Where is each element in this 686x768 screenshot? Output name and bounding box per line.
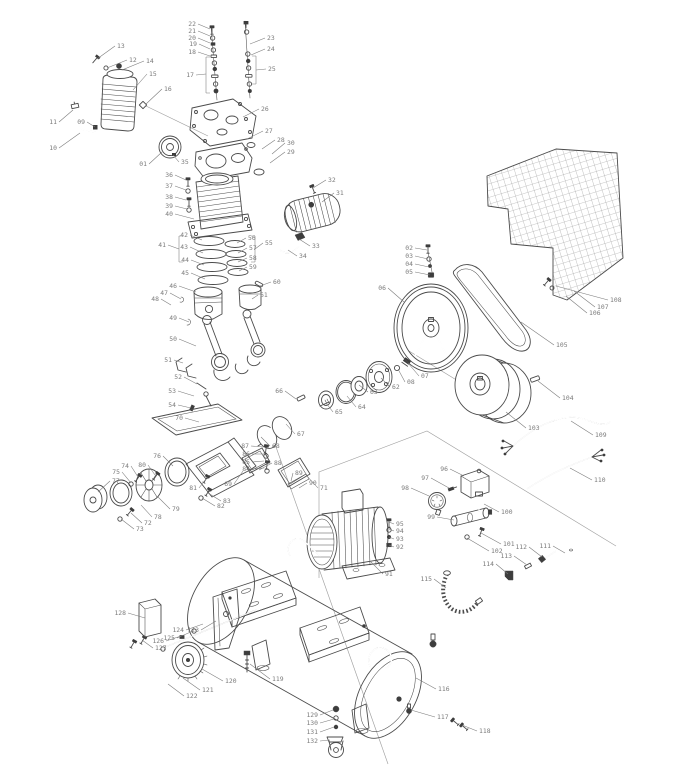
callout-leader-122 bbox=[168, 684, 184, 696]
wheel bbox=[172, 642, 207, 681]
callout-label-44: 44 bbox=[181, 256, 189, 264]
callout-label-61: 61 bbox=[260, 291, 268, 299]
callout-leader-23 bbox=[250, 38, 265, 44]
callout-leader-54 bbox=[178, 405, 191, 408]
callout-label-03: 03 bbox=[405, 252, 413, 260]
cooler-top-cap bbox=[107, 70, 133, 79]
callout-label-108: 108 bbox=[610, 296, 622, 304]
callout-label-07: 07 bbox=[421, 372, 429, 380]
callout-label-70: 70 bbox=[175, 414, 183, 422]
callout-label-64: 64 bbox=[358, 403, 366, 411]
callout-label-16: 16 bbox=[164, 85, 172, 93]
callout-leader-85 bbox=[252, 461, 264, 462]
motor-pulley bbox=[455, 355, 540, 423]
drain-plug-117 bbox=[406, 704, 411, 714]
diagram-canvas: 0102030405060708091011121314151617181920… bbox=[0, 0, 686, 768]
flywheel bbox=[394, 284, 468, 372]
callout-label-23: 23 bbox=[267, 34, 275, 42]
callout-leader-15 bbox=[133, 74, 147, 90]
callout-label-17: 17 bbox=[186, 71, 194, 79]
clamp-51 bbox=[176, 358, 186, 372]
callout-layer: 0102030405060708091011121314151617181920… bbox=[49, 20, 621, 745]
callout-label-53: 53 bbox=[168, 387, 176, 395]
callout-label-36: 36 bbox=[165, 171, 173, 179]
bearing-shell bbox=[235, 364, 248, 374]
callout-label-77: 77 bbox=[112, 477, 120, 485]
shaft-key-66 bbox=[297, 395, 306, 402]
callout-label-47: 47 bbox=[160, 289, 168, 297]
callout-label-115: 115 bbox=[420, 575, 432, 583]
v-belt bbox=[453, 265, 530, 352]
callout-label-14: 14 bbox=[146, 57, 154, 65]
bracket-17 bbox=[206, 57, 210, 93]
callout-label-74: 74 bbox=[121, 462, 129, 470]
callout-leader-36 bbox=[175, 175, 186, 180]
callout-leader-45 bbox=[191, 273, 205, 279]
callout-label-121: 121 bbox=[202, 686, 214, 694]
caster-stack bbox=[327, 706, 344, 758]
callout-leader-76 bbox=[163, 456, 173, 466]
callout-label-04: 04 bbox=[405, 260, 413, 268]
callout-label-85: 85 bbox=[242, 458, 250, 466]
callout-leader-61 bbox=[252, 295, 258, 299]
base-plate bbox=[152, 404, 242, 435]
callout-label-122: 122 bbox=[186, 692, 198, 700]
callout-leader-98 bbox=[411, 488, 429, 496]
callout-label-48: 48 bbox=[151, 295, 159, 303]
callout-label-111: 111 bbox=[539, 542, 551, 550]
callout-leader-116 bbox=[416, 678, 436, 689]
callout-label-103: 103 bbox=[528, 424, 540, 432]
callout-label-71: 71 bbox=[320, 484, 328, 492]
flywheel-bolt-stack bbox=[426, 244, 434, 277]
piston-large bbox=[194, 287, 222, 319]
callout-leader-32 bbox=[313, 180, 326, 188]
callout-label-104: 104 bbox=[562, 394, 574, 402]
callout-label-125: 125 bbox=[163, 634, 175, 642]
seal-63 bbox=[351, 377, 367, 396]
callout-leader-128 bbox=[128, 613, 145, 618]
callout-label-45: 45 bbox=[181, 269, 189, 277]
callout-label-50: 50 bbox=[169, 335, 177, 343]
valve-stack-right bbox=[244, 21, 252, 98]
valve-stack-left bbox=[210, 25, 219, 100]
callout-label-99: 99 bbox=[427, 513, 435, 521]
callout-leader-01 bbox=[149, 152, 162, 164]
callout-label-43: 43 bbox=[180, 243, 188, 251]
connecting-rods bbox=[176, 310, 265, 381]
callout-label-89: 89 bbox=[295, 469, 303, 477]
callout-label-119: 119 bbox=[272, 675, 284, 683]
callout-label-93: 93 bbox=[396, 535, 404, 543]
callout-label-120: 120 bbox=[225, 677, 237, 685]
callout-leader-131 bbox=[320, 727, 334, 732]
callout-label-21: 21 bbox=[188, 27, 196, 35]
callout-leader-110 bbox=[570, 468, 592, 480]
callout-label-112: 112 bbox=[515, 543, 527, 551]
callout-leader-44 bbox=[191, 260, 204, 265]
callout-leader-83 bbox=[208, 493, 221, 501]
manifold bbox=[451, 492, 492, 539]
callout-leader-121 bbox=[183, 678, 200, 690]
callout-label-68: 68 bbox=[272, 442, 280, 450]
callout-leader-39 bbox=[175, 206, 187, 209]
guard-bolt bbox=[542, 277, 551, 287]
platform-box-1 bbox=[222, 571, 296, 627]
callout-label-33: 33 bbox=[312, 242, 320, 250]
callout-label-110: 110 bbox=[594, 476, 606, 484]
callout-label-131: 131 bbox=[306, 728, 318, 736]
nipple-09 bbox=[93, 125, 98, 130]
callout-label-38: 38 bbox=[165, 193, 173, 201]
discharge-pipe bbox=[505, 549, 573, 580]
callout-label-76: 76 bbox=[153, 452, 161, 460]
callout-label-128: 128 bbox=[114, 609, 126, 617]
callout-label-13: 13 bbox=[117, 42, 125, 50]
callout-label-12: 12 bbox=[129, 56, 137, 64]
callout-label-10: 10 bbox=[49, 144, 57, 152]
electric-motor bbox=[307, 489, 395, 579]
callout-label-37: 37 bbox=[165, 182, 173, 190]
callout-label-87: 87 bbox=[241, 442, 249, 450]
callout-leader-65 bbox=[326, 403, 333, 412]
callout-label-75: 75 bbox=[112, 468, 120, 476]
fitting-16 bbox=[139, 101, 146, 108]
callout-label-100: 100 bbox=[501, 508, 513, 516]
callout-leader-11 bbox=[59, 110, 73, 122]
callout-label-98: 98 bbox=[401, 484, 409, 492]
callout-label-107: 107 bbox=[597, 303, 609, 311]
callout-label-05: 05 bbox=[405, 268, 413, 276]
wheel-bracket bbox=[213, 589, 239, 650]
callout-leader-04 bbox=[415, 264, 429, 267]
callout-label-28: 28 bbox=[277, 136, 285, 144]
oil-dipstick bbox=[189, 383, 211, 411]
callout-label-105: 105 bbox=[556, 341, 568, 349]
callout-leader-10 bbox=[59, 133, 80, 148]
callout-label-94: 94 bbox=[396, 527, 404, 535]
callout-label-127: 127 bbox=[155, 644, 167, 652]
washer-102 bbox=[465, 535, 469, 539]
callout-label-25: 25 bbox=[268, 65, 276, 73]
callout-label-59: 59 bbox=[249, 263, 257, 271]
callout-label-88: 88 bbox=[274, 459, 282, 467]
callout-leader-97 bbox=[431, 478, 449, 488]
callout-label-69: 69 bbox=[224, 480, 232, 488]
callout-label-96: 96 bbox=[440, 465, 448, 473]
callout-leader-24 bbox=[251, 49, 265, 55]
callout-leader-17 bbox=[196, 74, 206, 75]
callout-leader-95 bbox=[389, 522, 394, 524]
callout-leader-89 bbox=[291, 473, 293, 481]
callout-label-86: 86 bbox=[242, 450, 250, 458]
callout-label-15: 15 bbox=[149, 70, 157, 78]
callout-leader-82 bbox=[202, 498, 215, 506]
callout-leader-104 bbox=[538, 381, 560, 398]
callout-leader-74 bbox=[131, 466, 138, 477]
callout-leader-20 bbox=[198, 38, 210, 43]
rod-cap bbox=[214, 370, 230, 381]
callout-leader-09 bbox=[87, 122, 95, 127]
callout-label-78: 78 bbox=[154, 513, 162, 521]
cylinder-block bbox=[188, 173, 252, 238]
callout-label-130: 130 bbox=[306, 719, 318, 727]
tank-boss bbox=[396, 696, 401, 701]
callout-label-91: 91 bbox=[385, 570, 393, 578]
callout-label-92: 92 bbox=[396, 543, 404, 551]
callout-label-60: 60 bbox=[273, 278, 281, 286]
callout-label-52: 52 bbox=[174, 373, 182, 381]
callout-label-62: 62 bbox=[392, 383, 400, 391]
callout-leader-118 bbox=[462, 725, 477, 731]
tank-fitting bbox=[430, 634, 436, 647]
callout-leader-78 bbox=[141, 505, 152, 517]
callout-label-72: 72 bbox=[144, 519, 152, 527]
bearing-shell bbox=[247, 356, 260, 366]
callout-label-114: 114 bbox=[482, 560, 494, 568]
callout-label-39: 39 bbox=[165, 202, 173, 210]
callout-label-63: 63 bbox=[370, 388, 378, 396]
exhaust-elbow bbox=[247, 142, 269, 175]
bearing-65 bbox=[319, 391, 334, 409]
callout-leader-50 bbox=[179, 339, 196, 346]
clamp-51b bbox=[186, 364, 196, 378]
callout-label-51: 51 bbox=[164, 356, 172, 364]
callout-leader-72 bbox=[131, 513, 142, 523]
callout-leader-26 bbox=[243, 109, 259, 117]
callout-label-118: 118 bbox=[479, 727, 491, 735]
callout-label-34: 34 bbox=[299, 252, 307, 260]
callout-label-06: 06 bbox=[378, 284, 386, 292]
callout-leader-18 bbox=[198, 52, 210, 56]
callout-leader-21 bbox=[198, 31, 210, 36]
tank-handle-right bbox=[369, 648, 392, 669]
callout-leader-38 bbox=[175, 197, 186, 200]
callout-label-73: 73 bbox=[136, 525, 144, 533]
callout-leader-66 bbox=[285, 391, 296, 399]
callout-label-29: 29 bbox=[287, 148, 295, 156]
callout-leader-53 bbox=[178, 391, 194, 396]
callout-label-132: 132 bbox=[306, 737, 318, 745]
callout-label-79: 79 bbox=[172, 505, 180, 513]
callout-label-84: 84 bbox=[242, 465, 250, 473]
callout-leader-46 bbox=[179, 286, 196, 292]
callout-label-113: 113 bbox=[500, 552, 512, 560]
callout-label-11: 11 bbox=[49, 118, 57, 126]
callout-leader-06 bbox=[388, 288, 404, 302]
callout-leader-08 bbox=[398, 369, 405, 382]
callout-label-54: 54 bbox=[168, 401, 176, 409]
callout-leader-114 bbox=[496, 564, 508, 574]
callout-label-90: 90 bbox=[309, 479, 317, 487]
callout-leader-03 bbox=[415, 256, 428, 259]
belt-guard bbox=[487, 149, 623, 300]
air-filter bbox=[159, 136, 181, 158]
callout-leader-70 bbox=[185, 418, 199, 422]
callout-leader-30 bbox=[272, 143, 285, 154]
callout-label-22: 22 bbox=[188, 20, 196, 28]
callout-label-124: 124 bbox=[172, 626, 184, 634]
callout-leader-27 bbox=[247, 131, 263, 139]
filter-fitting-35 bbox=[172, 153, 176, 156]
callout-leader-87 bbox=[251, 446, 264, 447]
callout-label-24: 24 bbox=[267, 45, 275, 53]
callout-leader-105 bbox=[521, 322, 554, 345]
head-bolts bbox=[186, 177, 192, 212]
callout-leader-130 bbox=[320, 719, 334, 723]
exploded-parts-diagram: 0102030405060708091011121314151617181920… bbox=[0, 0, 686, 768]
callout-leader-127 bbox=[142, 640, 153, 648]
callout-label-57: 57 bbox=[249, 244, 257, 252]
callout-label-58: 58 bbox=[249, 254, 257, 262]
callout-leader-13 bbox=[97, 46, 115, 59]
callout-label-30: 30 bbox=[287, 139, 295, 147]
callout-leader-43 bbox=[190, 247, 203, 253]
callout-label-32: 32 bbox=[328, 176, 336, 184]
callout-leader-25 bbox=[256, 69, 266, 70]
fitting-11 bbox=[71, 101, 79, 108]
screw-101 bbox=[477, 527, 485, 537]
callout-label-20: 20 bbox=[188, 34, 196, 42]
callout-leader-113 bbox=[514, 556, 527, 565]
platform-box-2 bbox=[300, 607, 369, 662]
callout-leader-33 bbox=[299, 239, 310, 246]
callout-label-117: 117 bbox=[437, 713, 449, 721]
callout-label-35: 35 bbox=[181, 158, 189, 166]
callout-label-49: 49 bbox=[169, 314, 177, 322]
callout-label-109: 109 bbox=[595, 431, 607, 439]
callout-label-83: 83 bbox=[223, 497, 231, 505]
callout-label-02: 02 bbox=[405, 244, 413, 252]
flex-hose bbox=[443, 571, 482, 612]
callout-leader-16 bbox=[146, 89, 162, 104]
callout-leader-101 bbox=[481, 533, 501, 544]
callout-label-129: 129 bbox=[306, 711, 318, 719]
bolt-13 bbox=[91, 54, 101, 64]
callout-label-40: 40 bbox=[165, 210, 173, 218]
callout-label-67: 67 bbox=[297, 430, 305, 438]
callout-leader-109 bbox=[571, 421, 593, 435]
callout-label-42: 42 bbox=[180, 231, 188, 239]
pressure-switch bbox=[461, 469, 489, 498]
callout-leader-79 bbox=[158, 497, 170, 509]
cooler-fins bbox=[101, 84, 136, 122]
muffler bbox=[281, 190, 343, 235]
cylinder-head bbox=[190, 99, 256, 146]
callout-label-95: 95 bbox=[396, 520, 404, 528]
callout-label-31: 31 bbox=[336, 189, 344, 197]
callout-label-41: 41 bbox=[158, 241, 166, 249]
crankshaft bbox=[253, 395, 329, 452]
callout-leader-47 bbox=[170, 293, 181, 299]
callout-label-80: 80 bbox=[138, 461, 146, 469]
callout-label-101: 101 bbox=[503, 540, 515, 548]
callout-label-01: 01 bbox=[139, 160, 147, 168]
circlip-47 bbox=[180, 297, 184, 302]
callout-label-09: 09 bbox=[77, 118, 85, 126]
callout-leader-49 bbox=[179, 318, 189, 322]
elbow-33 bbox=[295, 233, 305, 241]
callout-leader-117 bbox=[411, 710, 435, 717]
callout-leader-02 bbox=[415, 248, 427, 250]
callout-label-66: 66 bbox=[275, 387, 283, 395]
callout-leader-102 bbox=[467, 538, 489, 551]
screws-118 bbox=[450, 717, 469, 731]
callout-label-56: 56 bbox=[248, 234, 256, 242]
wire-109 bbox=[501, 417, 610, 455]
callout-leader-22 bbox=[198, 24, 210, 29]
bracket-25 bbox=[252, 56, 256, 84]
callout-label-08: 08 bbox=[407, 378, 415, 386]
callout-leader-120 bbox=[202, 669, 223, 681]
callout-leader-41 bbox=[168, 245, 179, 249]
callout-label-27: 27 bbox=[265, 127, 273, 135]
gauge-fitting-97 bbox=[448, 485, 458, 491]
callout-leader-96 bbox=[450, 469, 464, 476]
callout-label-65: 65 bbox=[335, 408, 343, 416]
callout-label-26: 26 bbox=[261, 105, 269, 113]
pressure-gauge bbox=[429, 493, 446, 516]
callout-leader-73 bbox=[121, 519, 134, 529]
callout-leader-19 bbox=[199, 44, 210, 49]
callout-label-18: 18 bbox=[188, 48, 196, 56]
callout-label-46: 46 bbox=[169, 282, 177, 290]
callout-label-55: 55 bbox=[265, 239, 273, 247]
callout-leader-05 bbox=[415, 272, 430, 275]
callout-leader-37 bbox=[175, 186, 186, 190]
callout-label-116: 116 bbox=[438, 685, 450, 693]
callout-leader-40 bbox=[175, 214, 194, 219]
callout-leader-48 bbox=[161, 299, 171, 305]
callout-label-97: 97 bbox=[421, 474, 429, 482]
callout-label-81: 81 bbox=[189, 484, 197, 492]
